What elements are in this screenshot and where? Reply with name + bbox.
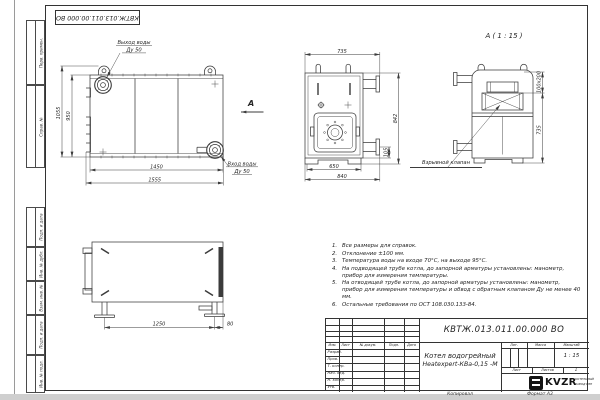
note-text: Все размеры для справок.	[342, 243, 582, 250]
note-number: 6.	[332, 302, 342, 309]
top-view: 1250 80	[58, 228, 314, 342]
row-tkontr: Т. контр.	[328, 365, 352, 369]
dim-height: 842	[393, 114, 399, 124]
top-view-dimensions: 1250 80	[105, 302, 234, 330]
title-block: Изм. Лист № докум. Подп. Дата Разраб. Пр…	[325, 318, 588, 391]
margin-label: Взам. инв. №	[38, 284, 43, 311]
side-view: 735 650 840 842 105	[290, 45, 418, 187]
company-name-line1: КОТЕЛЬНЫЙ	[575, 378, 589, 381]
outlet-label: Выход воды	[117, 40, 150, 46]
kvzr-logo-mark	[529, 376, 543, 390]
divider	[384, 319, 385, 392]
boiler-top-outline	[83, 242, 225, 318]
note-number: 2.	[332, 251, 342, 258]
divider	[404, 319, 405, 392]
dim-section-height: 735	[536, 125, 542, 135]
explosion-valve-label: Взрывной клапан	[410, 160, 482, 168]
boiler-side-outline	[305, 64, 380, 164]
note-number: 4.	[332, 266, 342, 280]
view-arrow-label: А	[247, 99, 254, 108]
note-number: 5.	[332, 280, 342, 301]
product-name-line1: Котел водогрейный	[419, 353, 501, 360]
note-item: 5.На отводящей трубе котла, до запорной …	[332, 280, 582, 301]
margin-cell: Подп. и дата	[26, 315, 45, 355]
lit-label: Лит.	[501, 344, 527, 347]
note-text: Температура воды на входе 70°С, на выход…	[342, 258, 582, 265]
dim-base-width: 650	[329, 164, 339, 170]
margin-label: Перв. примен.	[38, 37, 43, 67]
technical-notes: 1.Все размеры для справок. 2.Отклонение …	[332, 243, 582, 310]
col-podp: Подп.	[384, 344, 404, 347]
note-text: На подводящей трубе котла, до запорной а…	[342, 266, 582, 280]
company-name-line2: ЗАВОД РЭП	[575, 383, 589, 386]
row-nachotd: Нач. отд.	[328, 372, 352, 376]
margin-label: Подп. и дата	[38, 321, 43, 348]
boiler-rear-outline	[454, 64, 534, 163]
boiler-front-outline	[86, 66, 223, 158]
sheets-label: Листов	[532, 369, 563, 372]
dim-top-width: 735	[337, 49, 347, 55]
margin-label: Инв. № подл.	[38, 360, 43, 388]
note-item: 2.Отклонение ±100 мм.	[332, 251, 582, 258]
divider	[352, 319, 353, 392]
margin-label: Подп. и дата	[38, 213, 43, 240]
row-razrab: Разраб.	[328, 351, 352, 355]
side-dimensions: 735 650 840 842 105	[305, 49, 401, 182]
outlet-dn-label: Ду 50	[125, 48, 142, 54]
section-dimensions: 100х200 735	[448, 71, 545, 167]
product-name-line2: Heatexpert-КВа-0,15 -М	[419, 362, 501, 368]
copied-label: Копировал	[430, 392, 490, 397]
margin-cell: Подп. и дата	[26, 207, 45, 247]
inlet-label: Вход воды	[228, 162, 257, 168]
row-utv: Утв.	[328, 386, 352, 390]
dim-body-height: 950	[66, 111, 72, 121]
doc-number-stamp: КВТЖ.013.011.00.000 ВО	[55, 10, 140, 25]
sheets-value: 1	[563, 368, 589, 372]
dim-leg-offset: 80	[227, 322, 233, 328]
dim-total-height: 1055	[56, 107, 62, 120]
note-item: 4.На подводящей трубе котла, до запорной…	[332, 266, 582, 280]
note-text: На отводящей трубе котла, до запорной ар…	[342, 280, 582, 301]
margin-cell: Справ. №	[26, 85, 45, 168]
col-izm: Изм.	[326, 344, 339, 347]
col-ndoc: № докум.	[352, 344, 384, 347]
format-label: Формат А3	[510, 392, 570, 397]
dim-total-width: 840	[337, 174, 347, 180]
divider	[510, 348, 511, 367]
note-item: 3.Температура воды на входе 70°С, на вых…	[332, 258, 582, 265]
note-item: 6.Остальные требования по ОСТ 108.030.13…	[332, 302, 582, 309]
margin-label: Справ. №	[38, 117, 43, 136]
divider	[501, 348, 589, 349]
front-leaders: Выход воды Ду 50 Вход воды Ду 50 А	[107, 40, 264, 175]
front-view: 1055 950 1450 1555 Выход воды Ду 50 Вход…	[50, 28, 285, 192]
row-prov: Пров.	[328, 358, 352, 362]
divider	[501, 373, 589, 374]
dim-leg-span: 1250	[153, 322, 166, 328]
front-dimensions: 1055 950 1450 1555	[56, 66, 224, 186]
row-nkontr: Н. контр.	[328, 379, 352, 383]
col-list: Лист	[339, 344, 352, 347]
note-number: 3.	[332, 258, 342, 265]
note-number: 1.	[332, 243, 342, 250]
sheet-label: Лист	[501, 369, 532, 372]
dim-total-width: 1555	[148, 178, 161, 184]
dim-valve-size: 100х200	[536, 71, 542, 93]
section-a-view: 100х200 735	[438, 25, 562, 179]
margin-label: Инв. № дубл.	[38, 250, 43, 277]
margin-cell: Перв. примен.	[26, 20, 45, 85]
inlet-dn-label: Ду 50	[233, 169, 250, 175]
scale-label: Масштаб	[554, 344, 589, 347]
margin-cell: Инв. № подл.	[26, 355, 45, 393]
dim-base-height: 105	[383, 148, 389, 158]
note-text: Остальные требования по ОСТ 108.030.133-…	[342, 302, 582, 309]
paper-edge	[14, 0, 15, 394]
divider	[518, 348, 519, 367]
dim-body-width: 1450	[150, 165, 163, 171]
doc-number-rotated: КВТЖ.013.011.00.000 ВО	[56, 14, 139, 21]
section-view-title: А ( 1 : 15 )	[454, 32, 554, 40]
note-text: Отклонение ±100 мм.	[342, 251, 582, 258]
scale-value: 1 : 15	[554, 354, 589, 360]
mass-label: Масса	[527, 344, 554, 347]
kvzr-logo-text: KVZR	[545, 378, 577, 388]
margin-cell: Взам. инв. №	[26, 281, 45, 315]
note-item: 1.Все размеры для справок.	[332, 243, 582, 250]
title-doc-number: КВТЖ.013.011.00.000 ВО	[419, 326, 589, 335]
col-data: Дата	[404, 344, 419, 347]
margin-cell: Инв. № дубл.	[26, 247, 45, 281]
